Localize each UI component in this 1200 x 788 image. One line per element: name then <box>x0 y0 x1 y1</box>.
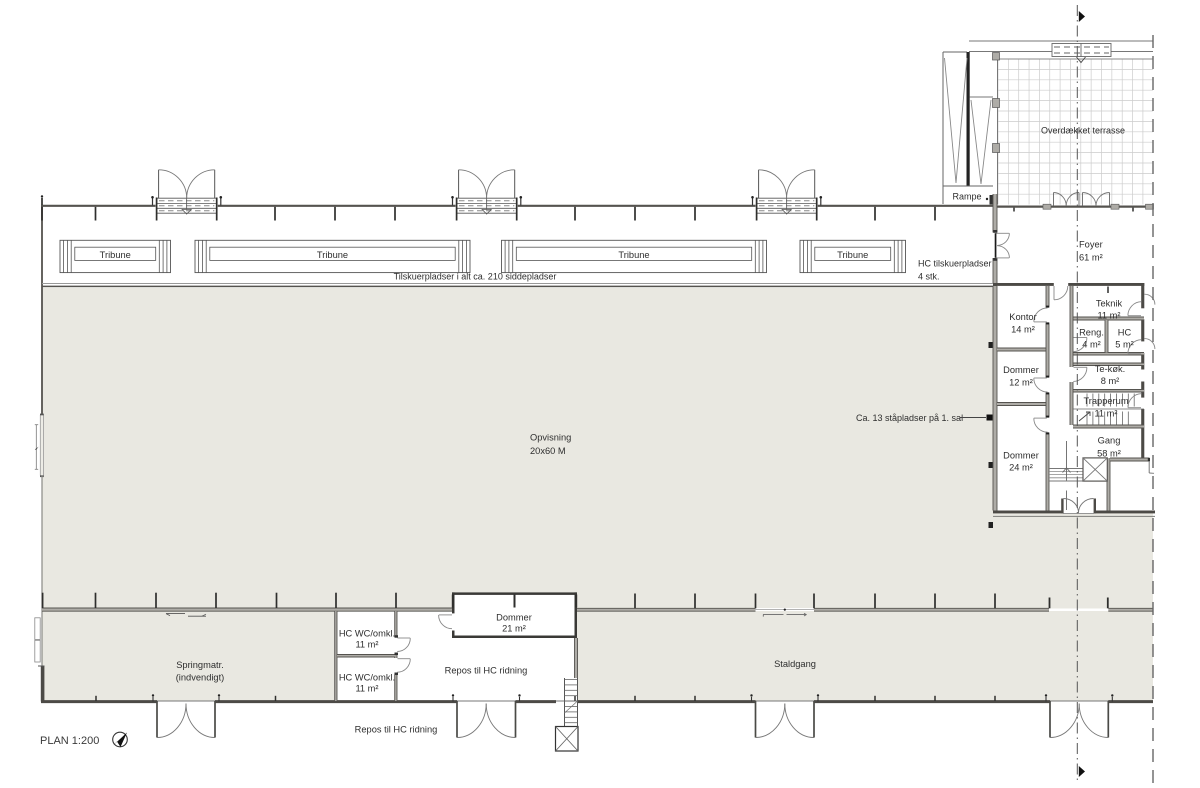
svg-text:14 m²: 14 m² <box>1011 325 1035 335</box>
svg-text:Tribune: Tribune <box>317 250 348 260</box>
svg-text:4 stk.: 4 stk. <box>918 272 940 282</box>
svg-text:11 m²: 11 m² <box>355 684 378 694</box>
svg-text:PLAN 1:200: PLAN 1:200 <box>40 735 99 747</box>
svg-text:4 m²: 4 m² <box>1082 340 1101 350</box>
svg-text:Trapperum: Trapperum <box>1083 396 1128 406</box>
svg-text:Dommer: Dommer <box>1003 365 1039 375</box>
svg-text:Foyer: Foyer <box>1079 240 1103 250</box>
svg-text:Reng.: Reng. <box>1079 328 1104 338</box>
svg-text:Teknik: Teknik <box>1096 299 1123 309</box>
svg-text:Te-køk.: Te-køk. <box>1095 364 1125 374</box>
svg-text:Rampe: Rampe <box>952 192 981 202</box>
svg-text:Opvisning: Opvisning <box>530 433 571 443</box>
svg-text:Springmatr.: Springmatr. <box>176 660 224 670</box>
svg-text:Repos til HC ridning: Repos til HC ridning <box>355 725 438 735</box>
svg-text:Tribune: Tribune <box>100 250 131 260</box>
svg-text:5 m²: 5 m² <box>1115 340 1134 350</box>
svg-text:58 m²: 58 m² <box>1097 449 1121 459</box>
svg-text:Tribune: Tribune <box>618 250 649 260</box>
svg-text:Ca. 13 ståpladser på 1. sal: Ca. 13 ståpladser på 1. sal <box>856 413 963 423</box>
svg-text:Gang: Gang <box>1098 436 1121 446</box>
svg-text:Dommer: Dommer <box>1003 451 1039 461</box>
svg-text:8 m²: 8 m² <box>1101 376 1120 386</box>
svg-text:Staldgang: Staldgang <box>774 659 816 669</box>
svg-text:11 m²: 11 m² <box>1097 311 1120 321</box>
svg-text:Overdækket terrasse: Overdækket terrasse <box>1041 126 1125 136</box>
svg-text:Repos til HC ridning: Repos til HC ridning <box>445 666 528 676</box>
svg-text:21 m²: 21 m² <box>502 624 526 634</box>
svg-text:20x60 M: 20x60 M <box>530 446 566 456</box>
svg-text:HC WC/omkl.: HC WC/omkl. <box>339 629 395 639</box>
svg-text:HC WC/omkl.: HC WC/omkl. <box>339 673 395 683</box>
svg-text:11 m²: 11 m² <box>355 640 378 650</box>
svg-text:HC: HC <box>1118 328 1132 338</box>
svg-text:12 m²: 12 m² <box>1009 378 1033 388</box>
svg-text:11 m²: 11 m² <box>1094 409 1117 419</box>
svg-text:61 m²: 61 m² <box>1079 253 1103 263</box>
svg-text:HC tilskuerpladser: HC tilskuerpladser <box>918 259 992 269</box>
svg-text:Kontor: Kontor <box>1009 312 1036 322</box>
svg-text:24 m²: 24 m² <box>1009 463 1033 473</box>
svg-text:Dommer: Dommer <box>496 613 532 623</box>
svg-text:Tribune: Tribune <box>837 250 868 260</box>
svg-text:(indvendigt): (indvendigt) <box>176 673 225 683</box>
svg-text:Tilskuerpladser i alt ca. 210: Tilskuerpladser i alt ca. 210 siddeplads… <box>394 272 557 282</box>
